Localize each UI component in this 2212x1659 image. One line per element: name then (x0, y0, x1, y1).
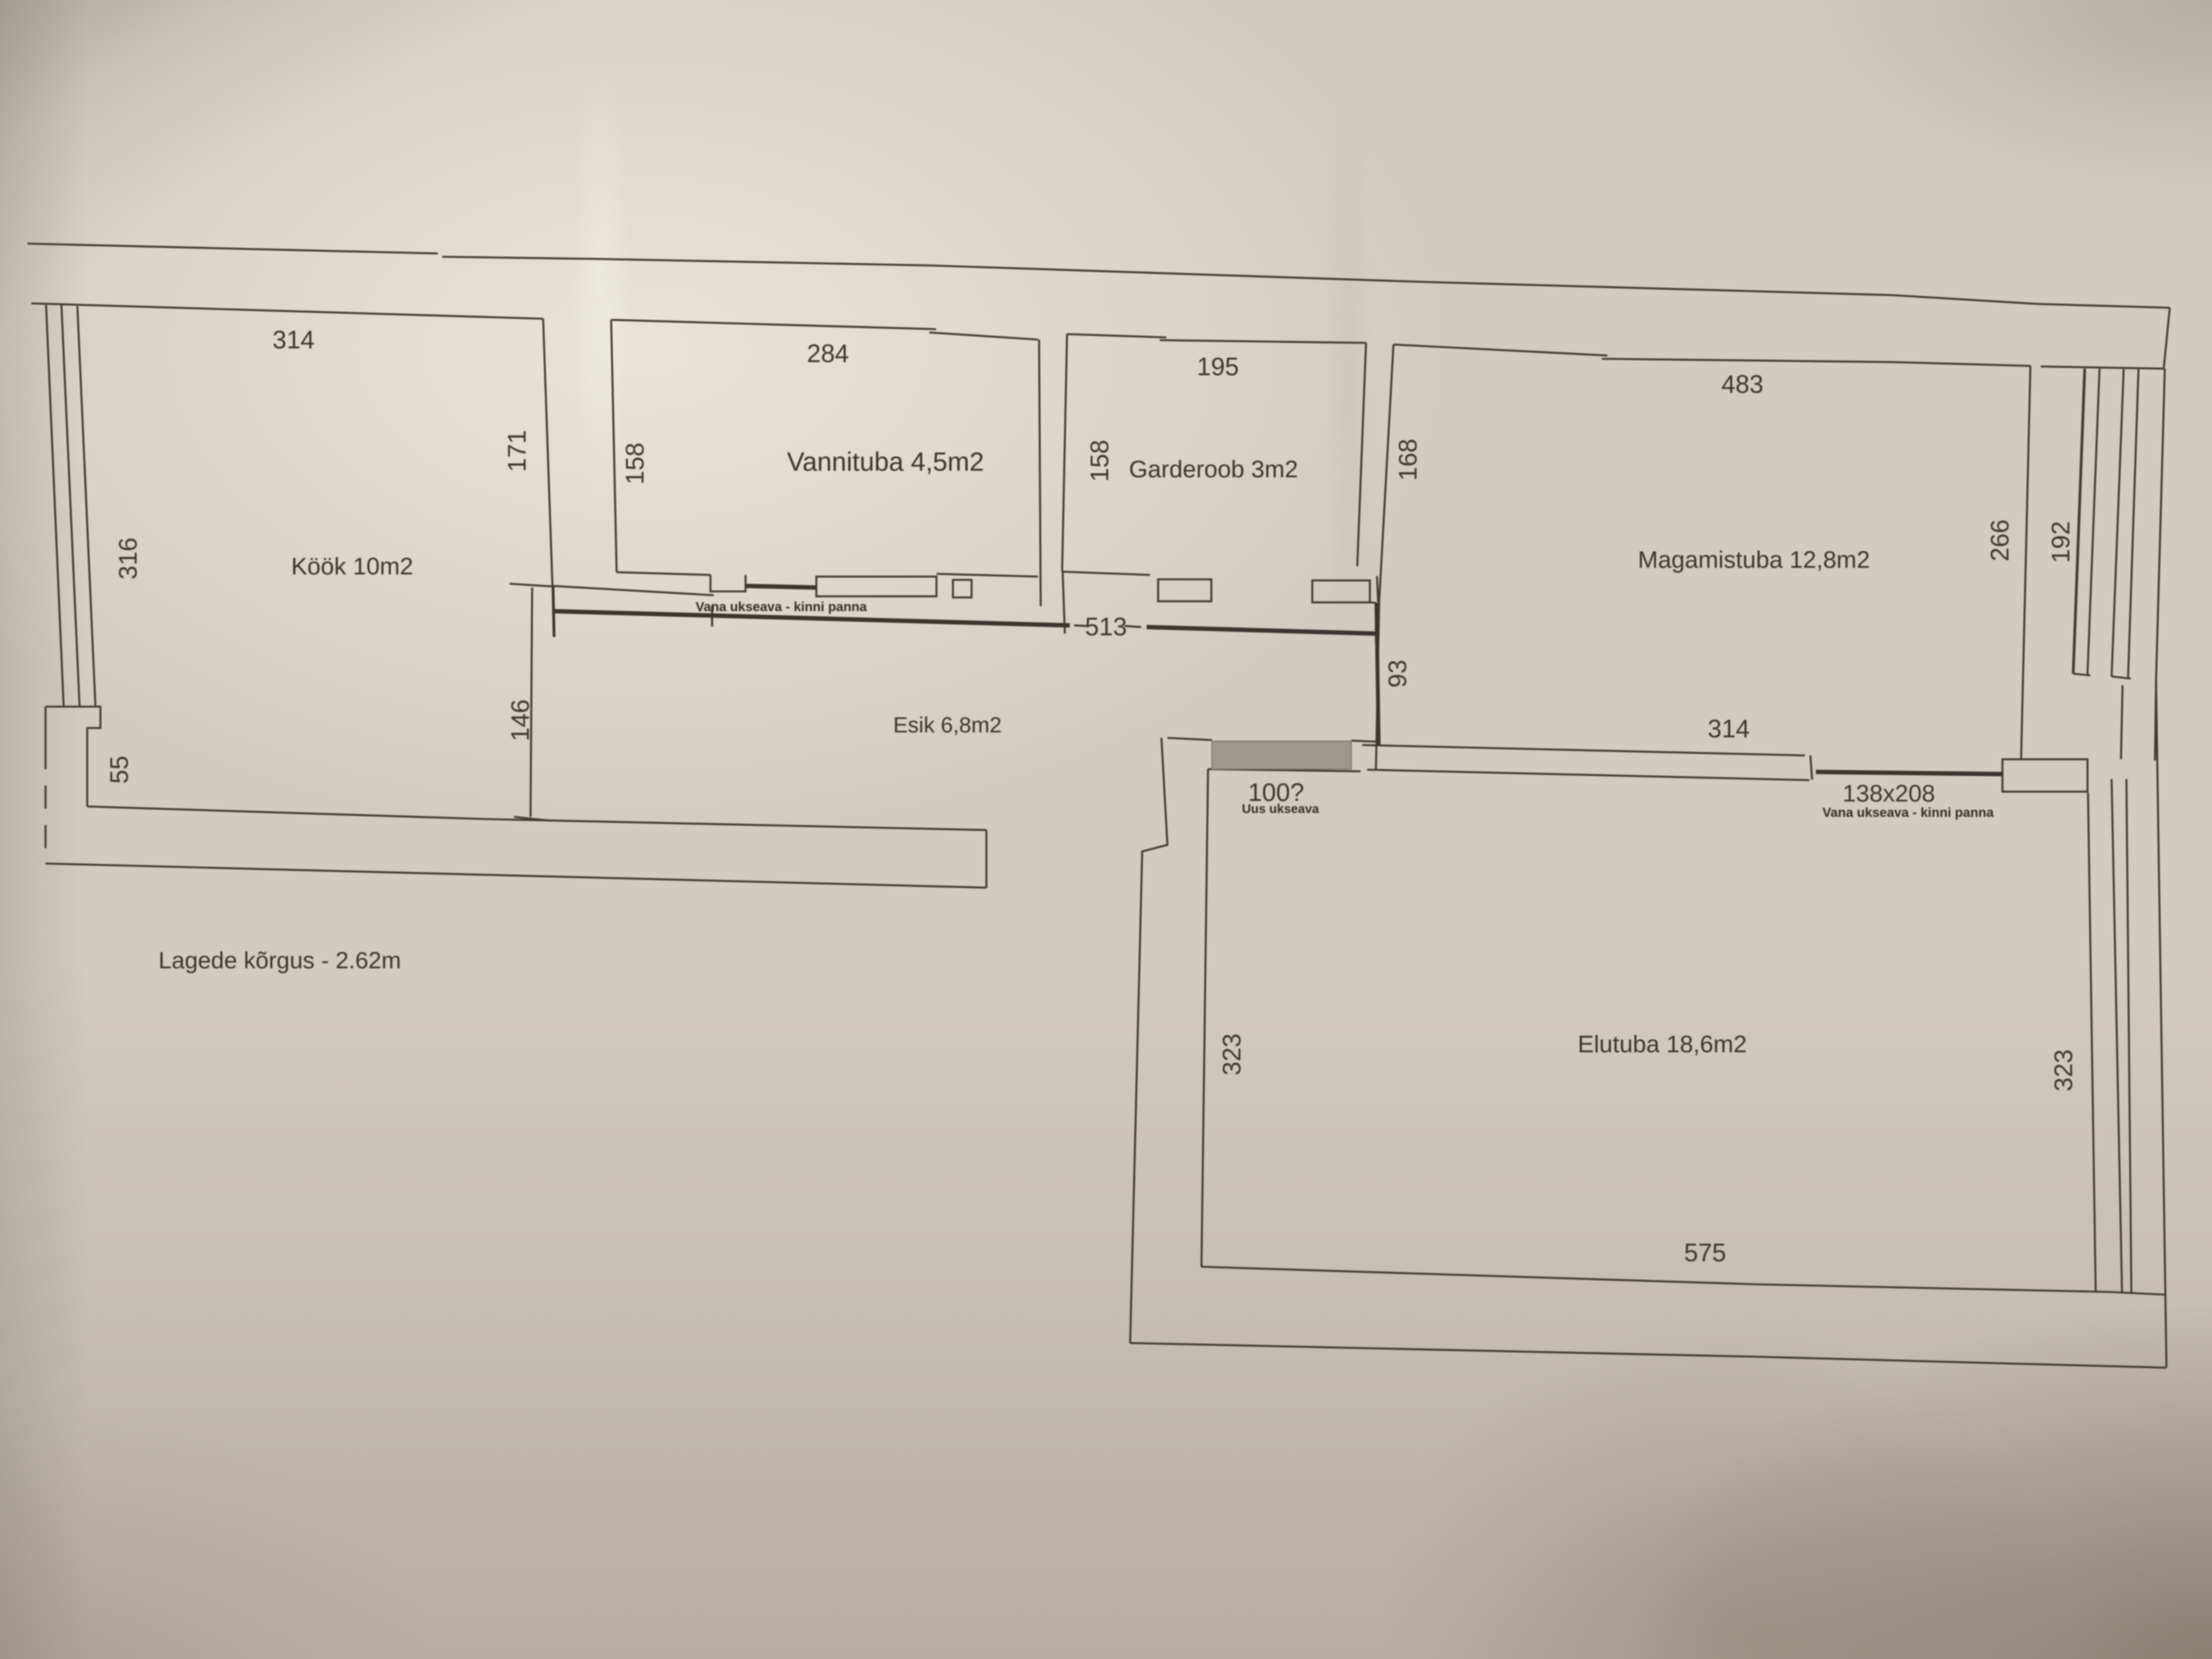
svg-text:158: 158 (1085, 440, 1114, 482)
svg-text:Elutuba 18,6m2: Elutuba 18,6m2 (1578, 1031, 1747, 1058)
svg-text:Esik 6,8m2: Esik 6,8m2 (893, 713, 1002, 737)
svg-text:171: 171 (503, 430, 531, 472)
svg-text:323: 323 (1217, 1034, 1246, 1076)
svg-text:513: 513 (1085, 612, 1127, 641)
svg-text:Lagede kõrgus - 2.62m: Lagede kõrgus - 2.62m (159, 947, 401, 974)
svg-text:Köök 10m2: Köök 10m2 (291, 553, 414, 580)
svg-text:93: 93 (1383, 659, 1412, 687)
svg-text:55: 55 (105, 755, 133, 783)
svg-text:Uus ukseava: Uus ukseava (1242, 802, 1319, 816)
svg-text:323: 323 (2049, 1049, 2078, 1092)
svg-text:Vana ukseava - kinni panna: Vana ukseava - kinni panna (1822, 805, 1994, 820)
svg-text:158: 158 (620, 443, 649, 485)
svg-text:Magamistuba 12,8m2: Magamistuba 12,8m2 (1638, 546, 1870, 573)
svg-text:146: 146 (506, 699, 534, 742)
svg-text:192: 192 (2046, 521, 2075, 563)
svg-text:483: 483 (1722, 370, 1764, 398)
svg-text:314: 314 (273, 325, 315, 354)
svg-text:Vana ukseava - kinni panna: Vana ukseava - kinni panna (696, 600, 867, 614)
svg-text:284: 284 (807, 339, 849, 368)
svg-text:314: 314 (1708, 714, 1750, 743)
svg-text:195: 195 (1197, 352, 1239, 381)
svg-text:Vannituba 4,5m2: Vannituba 4,5m2 (787, 448, 984, 477)
svg-text:138x208: 138x208 (1843, 780, 1936, 807)
svg-text:316: 316 (114, 538, 142, 580)
svg-text:Garderoob 3m2: Garderoob 3m2 (1129, 456, 1298, 483)
svg-text:266: 266 (1985, 520, 2014, 562)
svg-text:575: 575 (1684, 1238, 1726, 1267)
svg-text:168: 168 (1393, 439, 1422, 481)
